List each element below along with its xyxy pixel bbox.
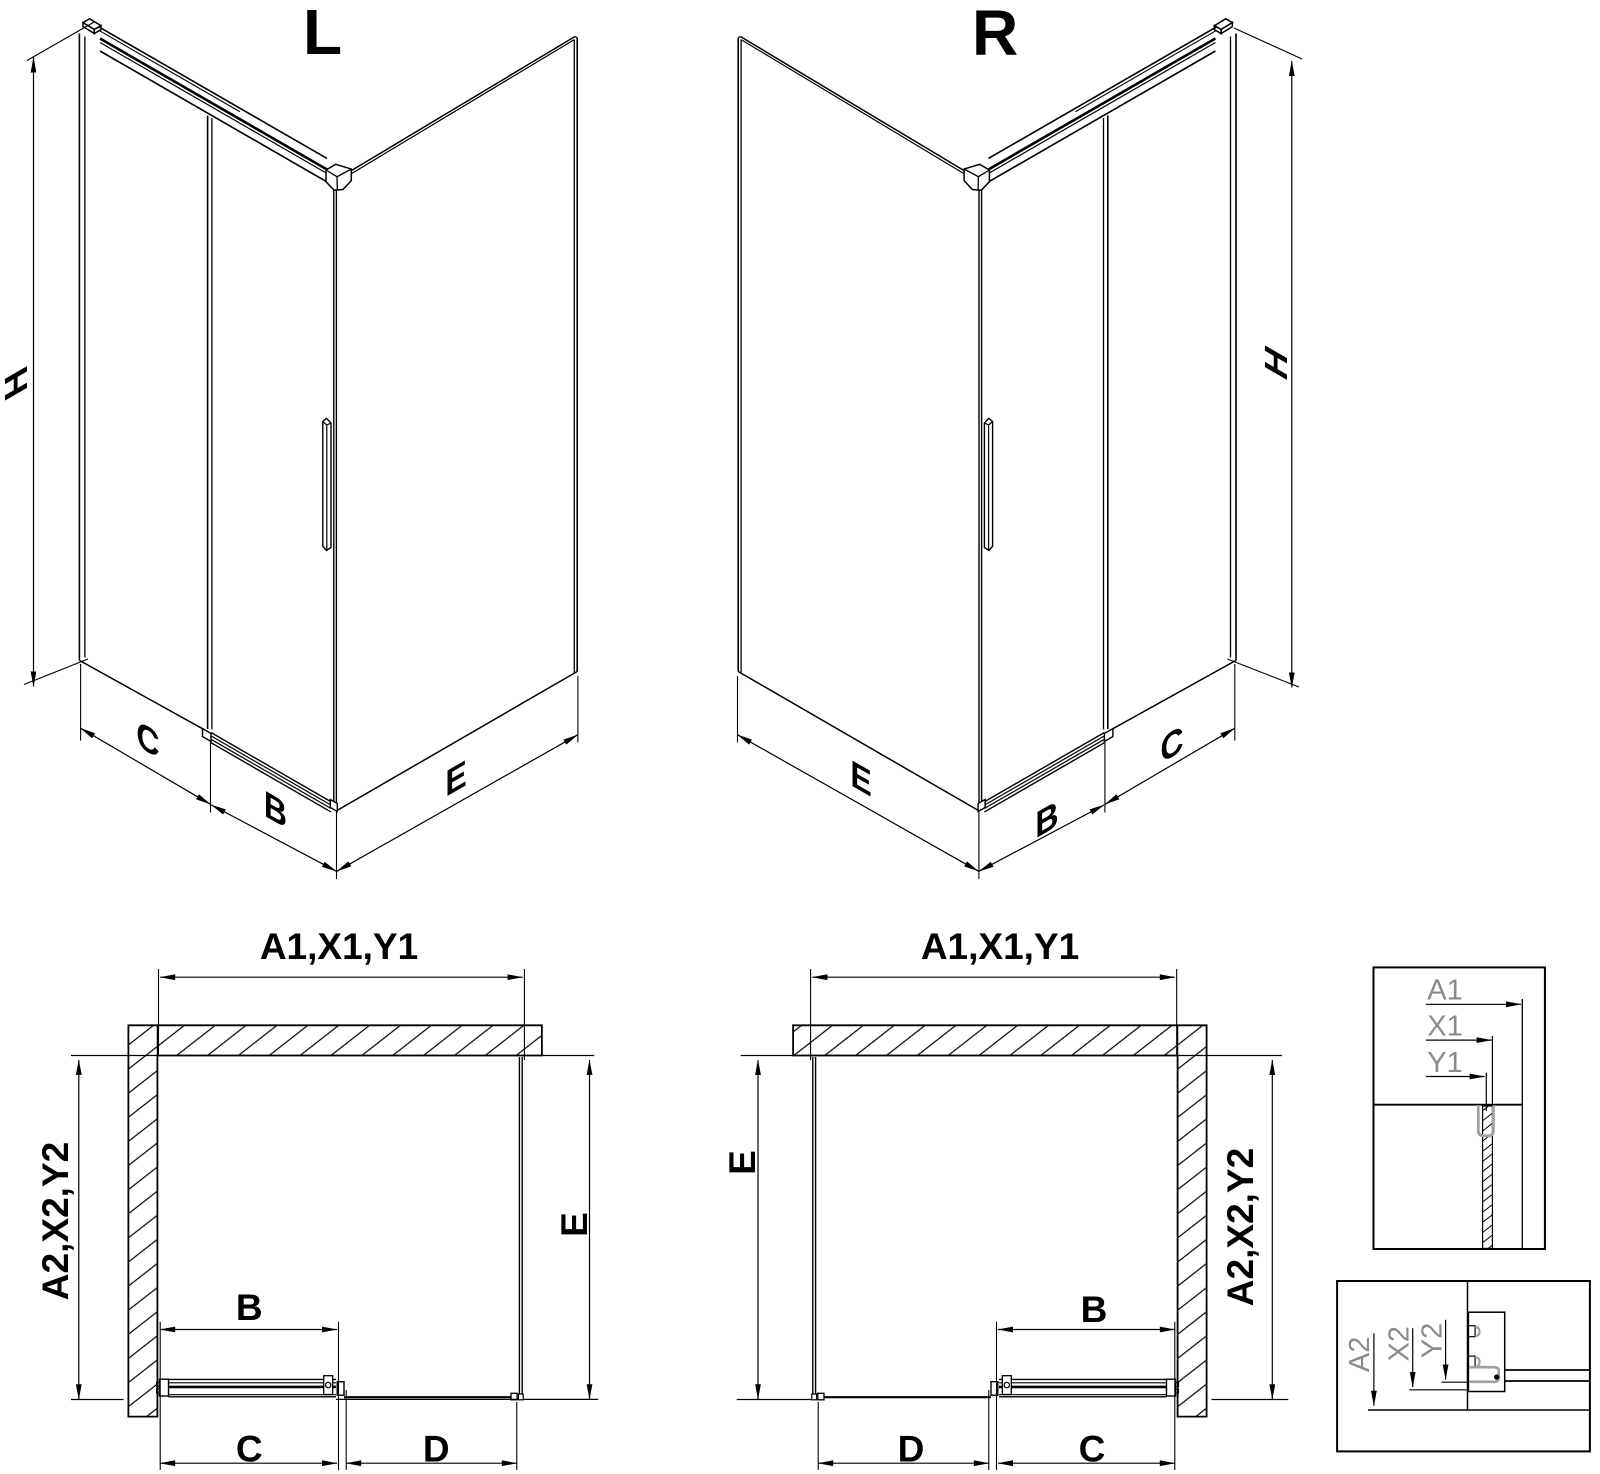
svg-text:R: R bbox=[972, 0, 1018, 69]
svg-text:A2: A2 bbox=[1344, 1337, 1376, 1372]
svg-text:D: D bbox=[423, 1429, 450, 1470]
svg-text:X1: X1 bbox=[1427, 1011, 1462, 1043]
svg-text:E: E bbox=[722, 1150, 763, 1175]
svg-text:Y2: Y2 bbox=[1416, 1323, 1448, 1358]
svg-text:D: D bbox=[898, 1429, 925, 1470]
svg-text:B: B bbox=[236, 1287, 263, 1328]
svg-text:Y1: Y1 bbox=[1427, 1047, 1462, 1079]
svg-text:A2,X2,Y2: A2,X2,Y2 bbox=[35, 1142, 76, 1300]
svg-text:A1,X1,Y1: A1,X1,Y1 bbox=[921, 926, 1079, 967]
svg-text:L: L bbox=[303, 0, 342, 68]
svg-text:X2: X2 bbox=[1384, 1326, 1416, 1361]
svg-text:A1,X1,Y1: A1,X1,Y1 bbox=[260, 926, 418, 967]
svg-text:A1: A1 bbox=[1427, 975, 1462, 1007]
svg-text:A2,X2,Y2: A2,X2,Y2 bbox=[1220, 1148, 1261, 1306]
svg-text:B: B bbox=[1081, 1289, 1108, 1330]
svg-text:E: E bbox=[554, 1212, 595, 1237]
svg-text:C: C bbox=[1079, 1429, 1106, 1470]
svg-text:C: C bbox=[236, 1429, 263, 1470]
